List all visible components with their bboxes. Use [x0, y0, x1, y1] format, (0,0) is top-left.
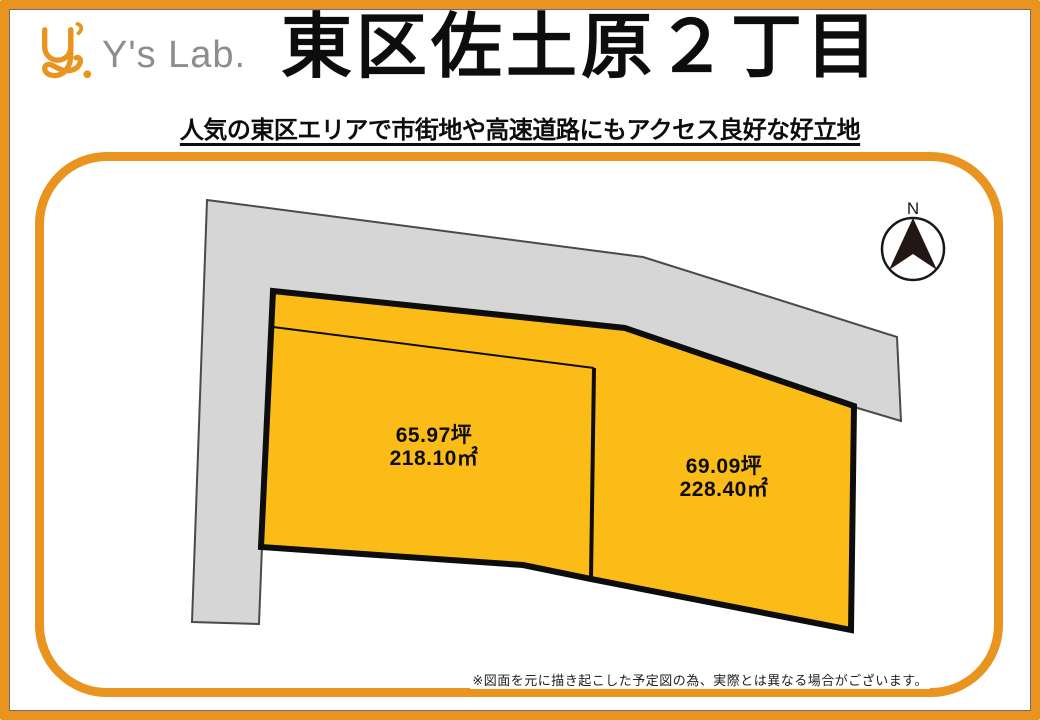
plot-1-tsubo: 65.97坪 — [334, 424, 534, 447]
compass-north-icon: N — [882, 199, 944, 280]
ys-lab-logo-icon — [36, 22, 94, 82]
disclaimer-note: ※図面を元に描き起こした予定図の為、実際とは異なる場合がございます。 — [470, 670, 930, 689]
brand-name: Y's Lab. — [102, 34, 246, 77]
site-plan-diagram: N — [0, 0, 1040, 720]
plot-1-label: 65.97坪 218.10㎡ — [334, 424, 534, 470]
compass-north-label: N — [907, 199, 919, 218]
plot-2-area: 228.40㎡ — [624, 478, 824, 501]
page-title: 東区佐土原２丁目 — [281, 2, 881, 94]
plot-2-label: 69.09坪 228.40㎡ — [624, 455, 824, 501]
page-subtitle: 人気の東区エリアで市街地や高速道路にもアクセス良好な好立地 — [0, 110, 1040, 145]
plot-2-tsubo: 69.09坪 — [624, 455, 824, 478]
plot-1-area: 218.10㎡ — [334, 447, 534, 470]
